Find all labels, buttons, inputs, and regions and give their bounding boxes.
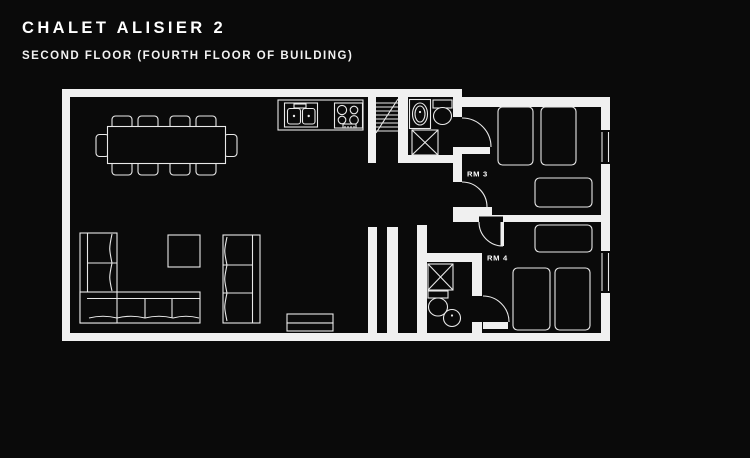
room-label-rm3: RM 3 — [467, 170, 488, 179]
room-label-rm4: RM 4 — [487, 254, 508, 263]
toilet-icon — [428, 291, 448, 316]
window-rm3 — [600, 130, 614, 164]
coffee-table — [168, 235, 200, 267]
door-bathroom-rm4 — [483, 296, 509, 329]
kitchen-sink — [285, 103, 318, 127]
dining-table — [108, 127, 226, 164]
door-rm3 — [462, 182, 492, 215]
staircase — [376, 99, 398, 133]
shower-icon — [412, 130, 438, 155]
basin-icon — [444, 310, 461, 327]
rm4-beds — [513, 225, 592, 330]
door-rm4 — [479, 222, 504, 246]
bathroom-rm4 — [428, 264, 461, 327]
window-rm4 — [600, 251, 614, 293]
floorplan-page: CHALET ALISIER 2 SECOND FLOOR (FOURTH FL… — [0, 0, 750, 458]
toilet-icon — [433, 100, 452, 125]
vanity-basin-icon — [410, 100, 431, 129]
floorplan-drawing: RM 3 RM 4 — [0, 0, 750, 458]
sofa — [223, 235, 260, 323]
door-bathroom-rm3 — [462, 118, 491, 154]
tv-unit — [287, 314, 333, 331]
stove-hob-icon — [335, 103, 363, 128]
shower-icon — [428, 264, 453, 290]
bathroom-rm3 — [410, 100, 453, 156]
rm3-beds — [498, 107, 592, 207]
